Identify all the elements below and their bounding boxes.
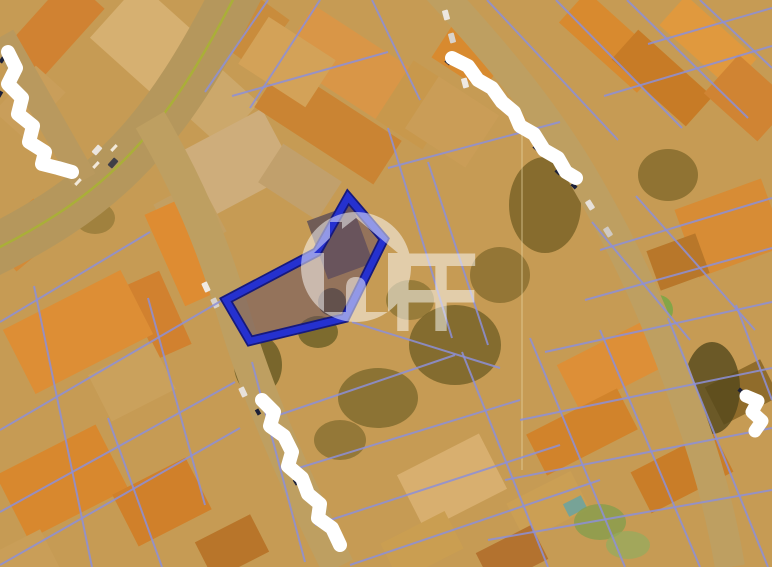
watermark-letters: FF: [392, 230, 475, 355]
aerial-map-canvas[interactable]: FF: [0, 0, 772, 567]
map-viewport[interactable]: FF: [0, 0, 772, 567]
warm-haze-overlay: [0, 0, 772, 567]
